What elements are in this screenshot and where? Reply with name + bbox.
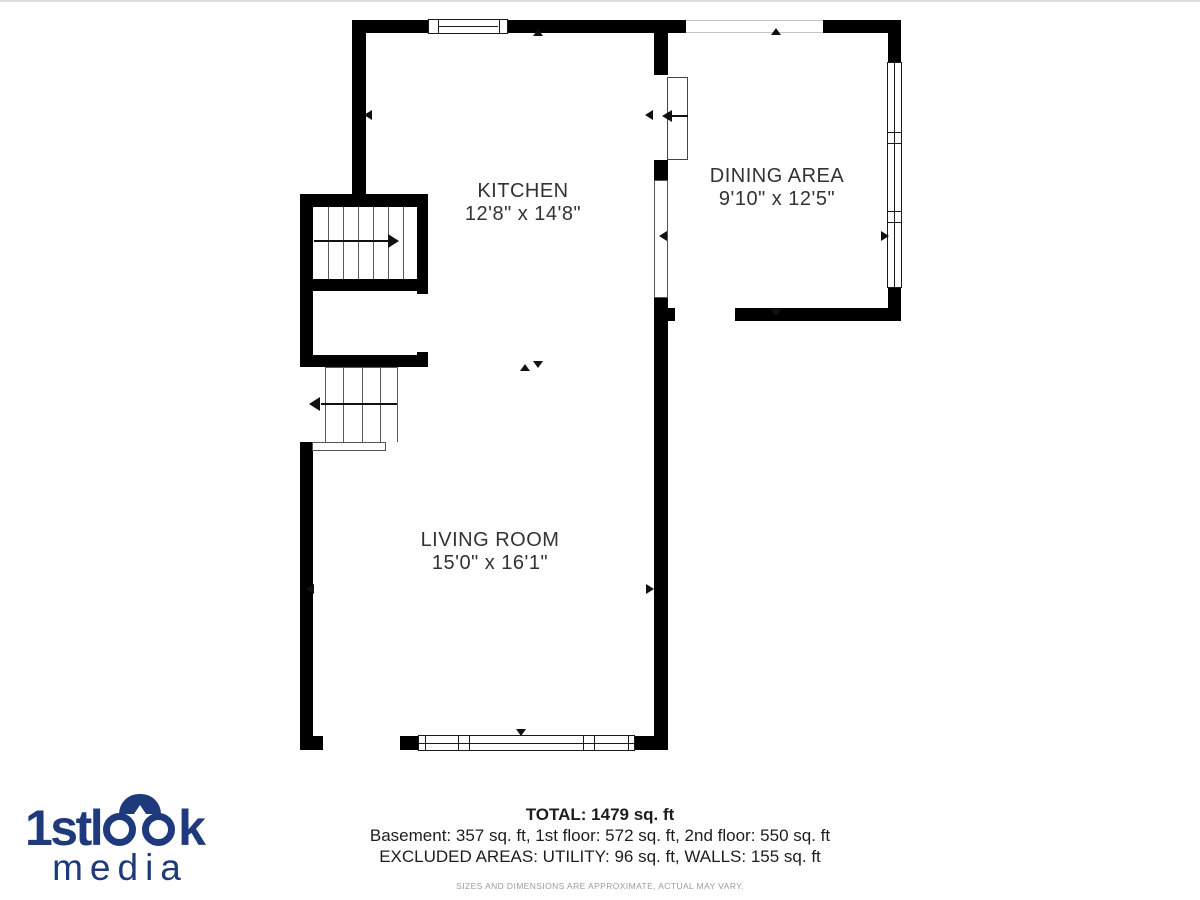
room-name-dining: DINING AREA	[657, 165, 897, 188]
stair-tread	[343, 207, 344, 279]
room-name-kitchen: KITCHEN	[403, 180, 643, 203]
company-logo: 1stl k media	[25, 792, 215, 887]
wall-kitchen-dining-above-door	[654, 33, 668, 75]
dining-top-opening	[686, 20, 823, 33]
stair-edge	[397, 367, 398, 442]
opening-marker-icon	[659, 231, 667, 241]
opening-marker-icon	[306, 584, 314, 594]
room-name-living: LIVING ROOM	[370, 529, 610, 552]
window-living-bottom	[418, 735, 635, 751]
wall-dining-right-bottom-corner	[888, 287, 901, 321]
opening-marker-icon	[364, 110, 372, 120]
logo-text-prefix: 1stl	[25, 803, 101, 853]
room-label-dining: DINING AREA 9'10" x 12'5"	[657, 165, 897, 211]
stair-tread	[358, 207, 359, 279]
stairs-up-arrow-icon	[388, 234, 399, 248]
opening-marker-icon	[646, 584, 654, 594]
opening-marker-icon	[516, 729, 526, 736]
staircase-up	[313, 207, 417, 279]
image-top-border	[0, 0, 1200, 2]
wall-left-lower	[300, 442, 313, 750]
wall-stair-middle	[313, 279, 428, 291]
stair-tread	[373, 207, 374, 279]
wall-living-right	[654, 298, 668, 750]
window-glass-line	[419, 743, 634, 744]
opening-marker-icon	[771, 28, 781, 35]
door-swing-arrow-shaft	[671, 115, 688, 117]
wall-bottom-segment	[400, 736, 418, 750]
opening-marker-icon	[645, 110, 653, 120]
stair-tread	[328, 207, 329, 279]
logo-lens-right-icon	[142, 813, 175, 846]
logo-notch-shape	[134, 805, 146, 814]
stair-nose-edge	[312, 442, 386, 451]
stairs-down-arrow-icon	[309, 397, 320, 411]
opening-marker-icon	[533, 29, 543, 36]
opening-marker-icon	[533, 361, 543, 368]
floor-plan-image: KITCHEN 12'8" x 14'8" DINING AREA 9'10" …	[0, 0, 1200, 900]
window-glass-line	[438, 26, 498, 27]
door-swing-arrow-icon	[662, 110, 672, 122]
room-dimensions-living: 15'0" x 16'1"	[370, 552, 610, 575]
wall-kitchen-left	[352, 20, 366, 195]
stairs-down-arrow-shaft	[321, 403, 397, 405]
logo-brand-line: 1stl k	[25, 792, 215, 853]
wall-left-upper	[300, 194, 313, 367]
room-dimensions-dining: 9'10" x 12'5"	[657, 188, 897, 211]
opening-marker-icon	[771, 309, 781, 316]
wall-landing-bottom	[300, 355, 428, 367]
wall-dining-bottom-stub	[654, 308, 675, 321]
room-label-kitchen: KITCHEN 12'8" x 14'8"	[403, 180, 643, 226]
opening-marker-icon	[881, 231, 889, 241]
logo-binoculars-icon	[103, 792, 177, 846]
stairs-up-arrow-shaft	[314, 240, 390, 242]
logo-subbrand-text: media	[25, 849, 215, 887]
opening-marker-icon	[520, 364, 530, 371]
window-kitchen-top	[428, 19, 508, 34]
wall-dining-bottom	[735, 308, 901, 321]
logo-text-suffix: k	[178, 803, 203, 853]
wall-bottom-left-corner	[300, 736, 323, 750]
room-dimensions-kitchen: 12'8" x 14'8"	[403, 203, 643, 226]
wall-dining-right-top-corner	[888, 20, 901, 63]
logo-lens-left-icon	[103, 813, 136, 846]
room-label-living: LIVING ROOM 15'0" x 16'1"	[370, 529, 610, 575]
window-mullion	[499, 20, 500, 33]
